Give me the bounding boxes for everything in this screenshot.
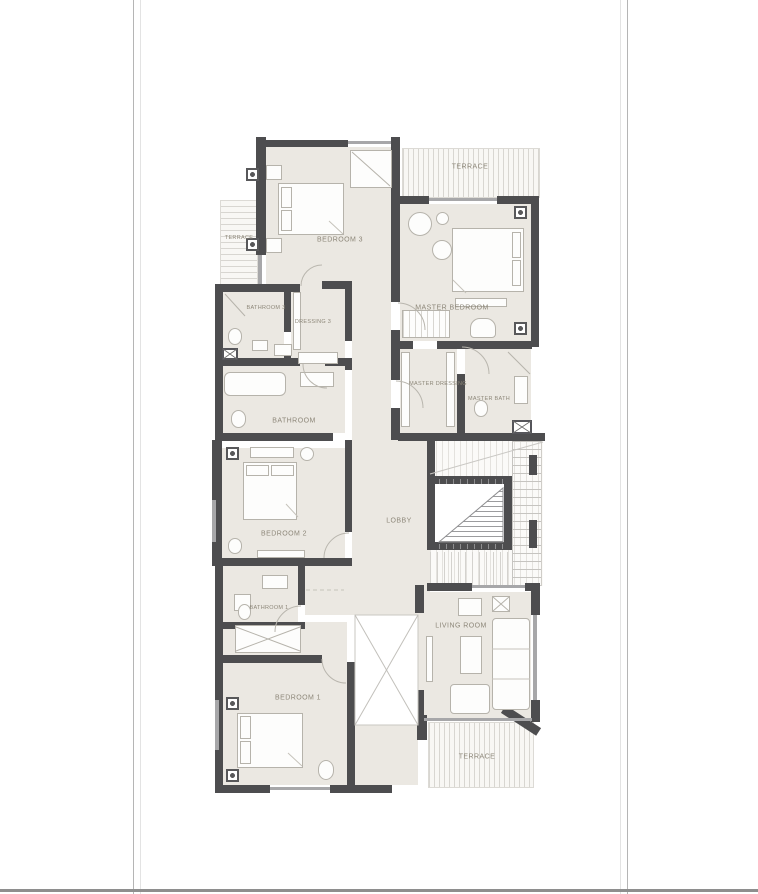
pillow xyxy=(271,465,294,476)
wardrobe xyxy=(446,352,455,427)
chair xyxy=(318,760,334,780)
bench xyxy=(257,550,305,558)
toilet xyxy=(474,400,488,417)
sink xyxy=(252,340,268,351)
room-label-lobby: LOBBY xyxy=(386,518,412,525)
side-table xyxy=(492,596,510,612)
room-label-master-bedroom: MASTER BEDROOM xyxy=(415,305,489,312)
room-label-bathroom: BATHROOM xyxy=(272,418,316,425)
pillow xyxy=(512,232,521,258)
stool xyxy=(228,538,242,554)
room-label-master-bath: MASTER BATH xyxy=(468,396,510,402)
pillow xyxy=(512,260,521,286)
room-label-bedroom-3: BEDROOM 3 xyxy=(317,237,363,244)
armchair xyxy=(408,212,432,236)
toilet xyxy=(228,328,242,345)
stool xyxy=(470,318,496,338)
pillow xyxy=(281,187,292,208)
pillow xyxy=(240,741,251,764)
wall-lamp xyxy=(514,322,527,335)
room-label-terrace-left: TERRACE xyxy=(225,235,253,241)
wardrobe xyxy=(402,310,450,338)
wall-lamp xyxy=(226,697,239,710)
vanity xyxy=(274,344,292,356)
wardrobe xyxy=(350,150,392,188)
side-table xyxy=(300,447,314,461)
room-label-master-dressing: MASTER DRESSING xyxy=(409,381,467,387)
nightstand xyxy=(266,165,282,180)
wall-lamp xyxy=(226,769,239,782)
toilet xyxy=(231,410,246,428)
armchair xyxy=(432,240,452,260)
closet xyxy=(235,625,301,653)
furniture-layer xyxy=(0,0,758,894)
vanity xyxy=(262,575,288,589)
room-label-terrace-bottom: TERRACE xyxy=(459,754,496,761)
console xyxy=(458,598,482,616)
dresser xyxy=(250,447,294,458)
sofa xyxy=(492,618,530,710)
tv-console xyxy=(426,636,433,682)
armchair xyxy=(450,684,490,714)
wardrobe xyxy=(401,352,410,427)
room-label-dressing-3: DRESSING 3 xyxy=(295,319,331,325)
room-label-bathroom-3: BATHROOM 3 xyxy=(247,305,286,311)
pillow xyxy=(246,465,269,476)
wall-lamp xyxy=(226,447,239,460)
counter xyxy=(298,352,338,364)
nightstand xyxy=(266,238,282,253)
pillow xyxy=(281,210,292,231)
room-label-bathroom-1: BATHROOM 1 xyxy=(250,605,289,611)
room-label-bedroom-2: BEDROOM 2 xyxy=(261,531,307,538)
bathtub xyxy=(224,372,286,396)
room-label-living-room: LIVING ROOM xyxy=(435,623,487,630)
side-table xyxy=(436,212,449,225)
room-label-terrace-top: TERRACE xyxy=(452,164,489,171)
coffee-table xyxy=(460,636,482,674)
room-label-bedroom-1: BEDROOM 1 xyxy=(275,695,321,702)
pillow xyxy=(240,716,251,739)
wall-lamp xyxy=(246,168,259,181)
wall-lamp xyxy=(514,206,527,219)
floor-plan-page: BEDROOM 3 TERRACE TERRACE MASTER BEDROOM… xyxy=(0,0,758,894)
sink xyxy=(514,376,528,404)
sink-counter xyxy=(300,372,334,387)
